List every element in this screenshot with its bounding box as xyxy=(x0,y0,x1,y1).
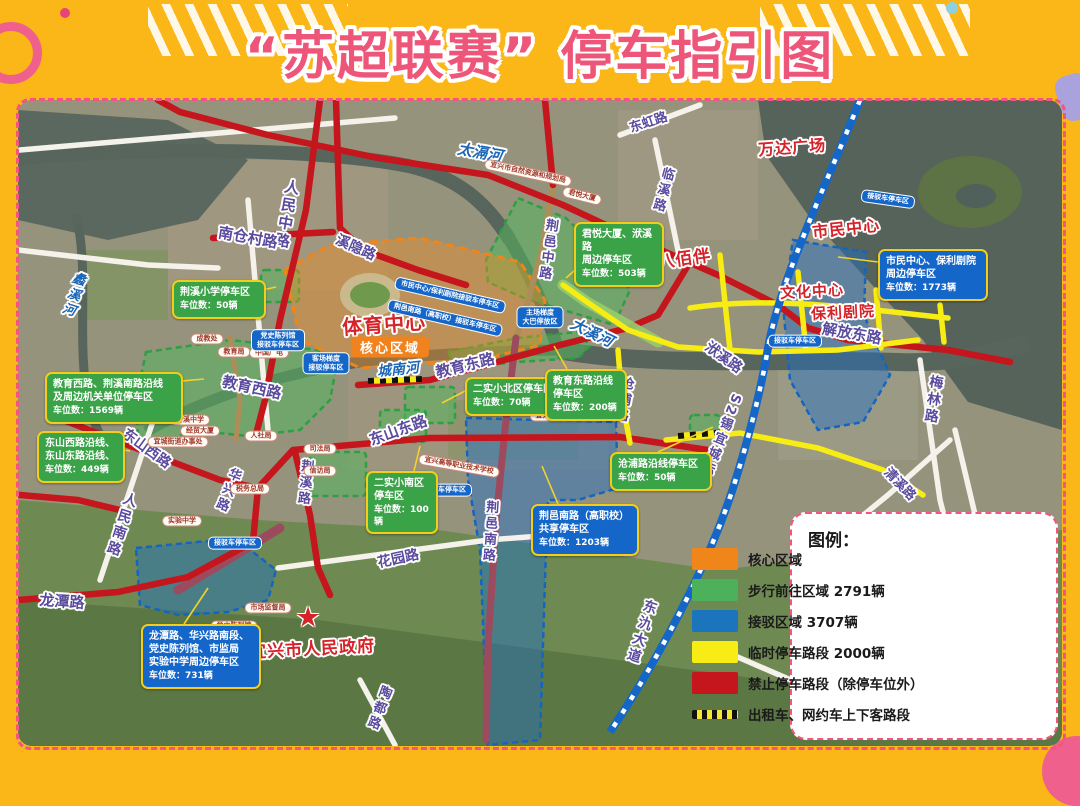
parking-callout: 龙潭路、华兴路南段、 党史陈列馆、市监局 实验中学周边停车区 车位数：731辆 xyxy=(141,624,261,689)
legend-swatch xyxy=(692,548,738,570)
facility-tag: 成教处 xyxy=(191,333,224,344)
parking-callout-name: 教育西路、荆溪南路沿线 及周边机关单位停车区 xyxy=(53,378,175,404)
facility-tag: 经贸大厦 xyxy=(180,425,220,436)
parking-callout: 沧浦路沿线停车区 车位数：50辆 xyxy=(610,452,712,491)
shuttle-stop-tag: 接驳车停车区 xyxy=(208,537,262,550)
shuttle-stop-tag: 主场梯度 大巴停放区 xyxy=(517,306,564,328)
legend-item: 临时停车路段 2000辆 xyxy=(692,641,924,663)
satellite-map: 人民中路南仓村路溪隐路东虹路临溪路荆邑中路解放东路洑溪路梅林路S2锡宜城际教育东… xyxy=(18,100,1062,746)
legend-swatch xyxy=(692,641,738,663)
parking-callout-name: 荆溪小学停车区 xyxy=(180,286,258,299)
parking-callout-count: 车位数：50辆 xyxy=(618,473,704,485)
facility-tag: 信访局 xyxy=(304,465,337,476)
legend-swatch xyxy=(692,579,738,601)
parking-callout-count: 车位数：731辆 xyxy=(149,671,253,683)
legend-swatch xyxy=(692,710,738,719)
parking-callout-count: 车位数：100辆 xyxy=(374,505,430,528)
legend-item-label: 核心区域 xyxy=(748,549,802,569)
facility-tag: 税务总局 xyxy=(230,483,270,494)
page-title: “苏超联赛” 停车指引图 xyxy=(0,14,1080,89)
legend-item: 禁止停车路段（除停车位外） xyxy=(692,672,924,694)
parking-callout: 二实小南区 停车区 车位数：100辆 xyxy=(366,471,438,534)
road-label: 龙潭路 xyxy=(39,589,85,613)
legend-swatch xyxy=(692,672,738,694)
poster-background: “苏超联赛” 停车指引图 xyxy=(0,0,1080,764)
pink-corner-blob xyxy=(1042,736,1080,806)
core-area-badge: 核心区域 xyxy=(351,337,429,358)
parking-callout: 教育东路沿线 停车区 车位数：200辆 xyxy=(545,369,627,421)
facility-tag: 实验中学 xyxy=(162,515,202,526)
facility-tag: 市场监督局 xyxy=(245,602,292,613)
parking-callout-count: 车位数：1773辆 xyxy=(886,283,980,295)
facility-tag: 教育局 xyxy=(218,346,251,357)
parking-callout-count: 车位数：50辆 xyxy=(180,301,258,313)
shuttle-stop-tag: 党史陈列馆 接驳车停车区 xyxy=(251,329,305,351)
legend-item-label: 临时停车路段 2000辆 xyxy=(748,642,885,662)
parking-callout: 荆邑南路（高职校） 共享停车区 车位数：1203辆 xyxy=(531,504,639,556)
parking-callout-name: 二实小南区 停车区 xyxy=(374,477,430,503)
legend-items: 核心区域 步行前往区域 2791辆 接驳区域 3707辆 临时停车路段 2000… xyxy=(808,559,1040,734)
parking-callout-name: 沧浦路沿线停车区 xyxy=(618,458,704,471)
parking-callout-count: 车位数：1569辆 xyxy=(53,406,175,418)
parking-callout: 荆溪小学停车区 车位数：50辆 xyxy=(172,280,266,319)
legend-item-label: 禁止停车路段（除停车位外） xyxy=(748,673,924,693)
landmark-label: 文化中心 xyxy=(779,279,844,303)
legend-item: 接驳区域 3707辆 xyxy=(692,610,924,632)
legend-item-label: 出租车、网约车上下客路段 xyxy=(748,704,910,724)
parking-callout-name: 君悦大厦、洑溪路 周边停车区 xyxy=(582,228,656,267)
government-star-icon: ★ xyxy=(295,601,320,634)
facility-tag: 人社局 xyxy=(245,430,278,441)
parking-callout-name: 市民中心、保利剧院 周边停车区 xyxy=(886,255,980,281)
parking-callout: 君悦大厦、洑溪路 周边停车区 车位数：503辆 xyxy=(574,222,664,287)
parking-callout: 东山西路沿线、 东山东路沿线、 车位数：449辆 xyxy=(37,431,125,483)
legend-item-label: 步行前往区域 2791辆 xyxy=(748,580,885,600)
legend-item: 核心区域 xyxy=(692,548,924,570)
teal-dot-decoration xyxy=(946,2,958,14)
shuttle-stop-tag: 接驳车停车区 xyxy=(768,335,822,348)
parking-callout-name: 荆邑南路（高职校） 共享停车区 xyxy=(539,510,631,536)
parking-callout-name: 东山西路沿线、 东山东路沿线、 xyxy=(45,437,117,463)
parking-callout: 教育西路、荆溪南路沿线 及周边机关单位停车区 车位数：1569辆 xyxy=(45,372,183,424)
landmark-label: 万达广场 xyxy=(757,132,827,161)
facility-tag: 司法局 xyxy=(304,443,337,454)
parking-callout-name: 龙潭路、华兴路南段、 党史陈列馆、市监局 实验中学周边停车区 xyxy=(149,630,253,669)
landmark-label: 保利剧院 xyxy=(810,300,875,324)
legend-swatch xyxy=(692,610,738,632)
parking-callout-count: 车位数：1203辆 xyxy=(539,538,631,550)
parking-callout-count: 车位数：200辆 xyxy=(553,403,619,415)
parking-callout-count: 车位数：449辆 xyxy=(45,465,117,477)
legend-item: 步行前往区域 2791辆 xyxy=(692,579,924,601)
parking-callout-count: 车位数：503辆 xyxy=(582,269,656,281)
shuttle-stop-tag: 客场梯度 接驳停车区 xyxy=(303,352,350,374)
parking-callout: 市民中心、保利剧院 周边停车区 车位数：1773辆 xyxy=(878,249,988,301)
parking-callout-name: 教育东路沿线 停车区 xyxy=(553,375,619,401)
legend-item-label: 接驳区域 3707辆 xyxy=(748,611,858,631)
legend-item: 出租车、网约车上下客路段 xyxy=(692,704,924,724)
legend: 图例： 核心区域 步行前往区域 2791辆 接驳区域 3707辆 临时停车路段 … xyxy=(790,512,1058,740)
facility-tag: 宜城街道办事处 xyxy=(148,436,209,447)
